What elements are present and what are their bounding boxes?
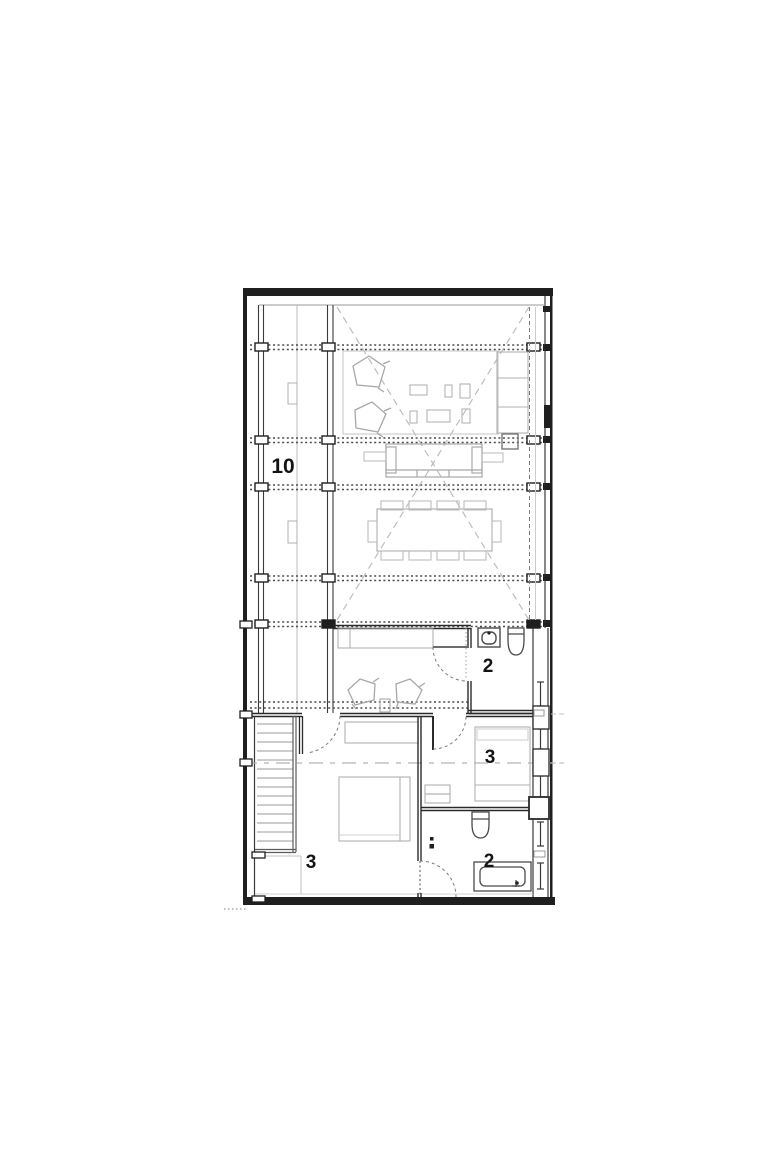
toilet-upper: [508, 628, 524, 655]
door-left-bedroom: [300, 716, 341, 754]
side-shelf-left: [364, 452, 386, 461]
bathtub: [474, 862, 531, 891]
dining-table: [377, 509, 492, 551]
toilet-lower: [472, 812, 489, 838]
wall-left: [243, 288, 247, 905]
label-bedroom-left: 3: [306, 852, 317, 873]
door-swing-arc: [433, 716, 466, 749]
hall-cabinet: [338, 629, 433, 648]
wardrobe: [345, 722, 418, 743]
wall-right-outer: [550, 288, 553, 905]
living-rug: [343, 351, 498, 434]
lounge-chair-1: [353, 356, 390, 392]
side-shelf-right: [482, 453, 503, 462]
column-block: [502, 434, 518, 449]
terrace-edge-lines: [259, 305, 334, 713]
door-swing-arc: [433, 647, 467, 681]
wall-top: [243, 288, 553, 296]
door-right-bedroom: [433, 716, 466, 750]
bed-left: [339, 777, 410, 841]
stair-treads: [257, 724, 293, 841]
facade-small-tabs: [534, 710, 545, 857]
bedroom-divider-wall: [418, 716, 421, 897]
bathroom-lower-top-wall: [421, 808, 533, 811]
coffee-table-set: [410, 384, 470, 423]
stairs: [255, 716, 301, 894]
floor-plan-drawing: 10 2 3 3 2: [0, 0, 782, 1174]
label-bath-lower: 2: [484, 851, 495, 872]
door-swing-arc: [420, 861, 456, 897]
void-x-marks: [337, 307, 529, 620]
bed-right: [475, 727, 530, 801]
sink: [478, 628, 500, 647]
door-upper-bath: [433, 647, 467, 681]
hall-side-table: [380, 699, 390, 712]
outer-walls: [243, 288, 555, 905]
label-bath-upper: 2: [483, 656, 494, 677]
media-cabinet: [497, 352, 528, 433]
facade-grid-dashes: [551, 714, 565, 763]
hall-chair-1: [348, 678, 379, 709]
shower-drain-dots: [430, 837, 435, 849]
door-swing-arc: [307, 716, 340, 753]
wall-bottom: [243, 897, 555, 905]
hall-chair-2: [396, 679, 425, 709]
lounge-chair-2: [355, 402, 391, 437]
nightstand: [425, 785, 450, 803]
door-lower-bath: [420, 861, 456, 897]
label-terrace: 10: [271, 455, 294, 478]
label-bedroom-right: 3: [485, 747, 496, 768]
sofa: [386, 444, 482, 477]
floor-plan: 10 2 3 3 2: [0, 0, 782, 1174]
